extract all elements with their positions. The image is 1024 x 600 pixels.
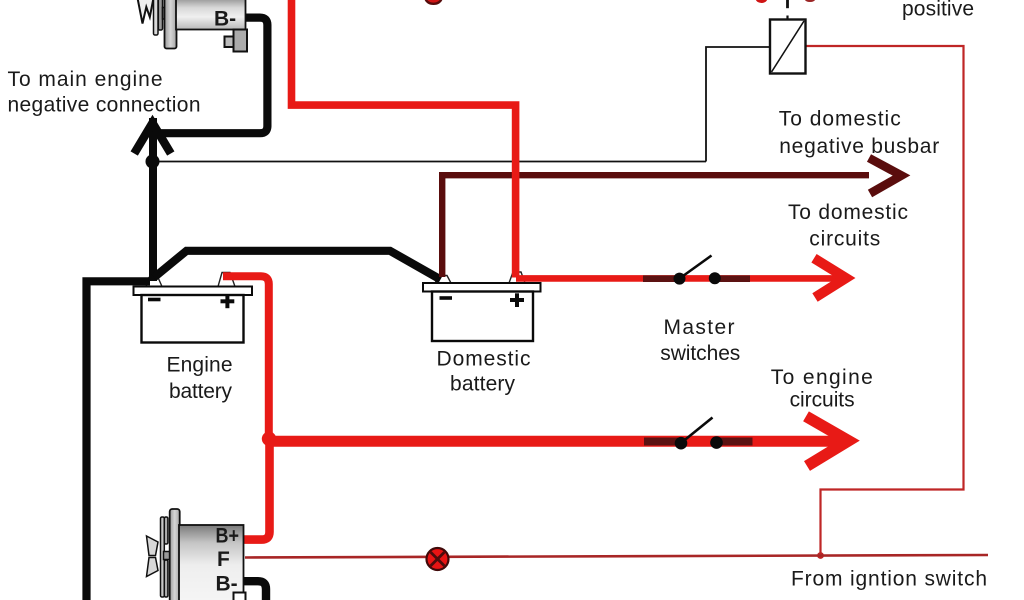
- svg-text:To domestic: To domestic: [788, 201, 908, 224]
- svg-text:F: F: [217, 548, 230, 571]
- svg-text:Master: Master: [664, 316, 735, 339]
- svg-text:B-: B-: [214, 8, 236, 31]
- svg-text:switches: switches: [660, 342, 740, 365]
- svg-text:circuits: circuits: [790, 389, 855, 412]
- svg-text:circuits: circuits: [809, 227, 880, 250]
- svg-text:battery: battery: [450, 372, 516, 395]
- svg-text:B-: B-: [216, 572, 238, 595]
- svg-text:negative connection: negative connection: [8, 94, 201, 117]
- svg-text:B+: B+: [216, 525, 240, 548]
- svg-text:To main engine: To main engine: [8, 68, 163, 91]
- svg-text:To engine: To engine: [771, 366, 873, 389]
- svg-text:Engine: Engine: [167, 353, 233, 376]
- svg-text:Domestic: Domestic: [437, 347, 531, 370]
- svg-text:positive: positive: [902, 0, 974, 21]
- svg-text:battery: battery: [169, 380, 233, 403]
- svg-text:To domestic: To domestic: [779, 108, 901, 131]
- svg-text:negative busbar: negative busbar: [779, 135, 939, 158]
- svg-text:From igntion switch: From igntion switch: [791, 568, 987, 591]
